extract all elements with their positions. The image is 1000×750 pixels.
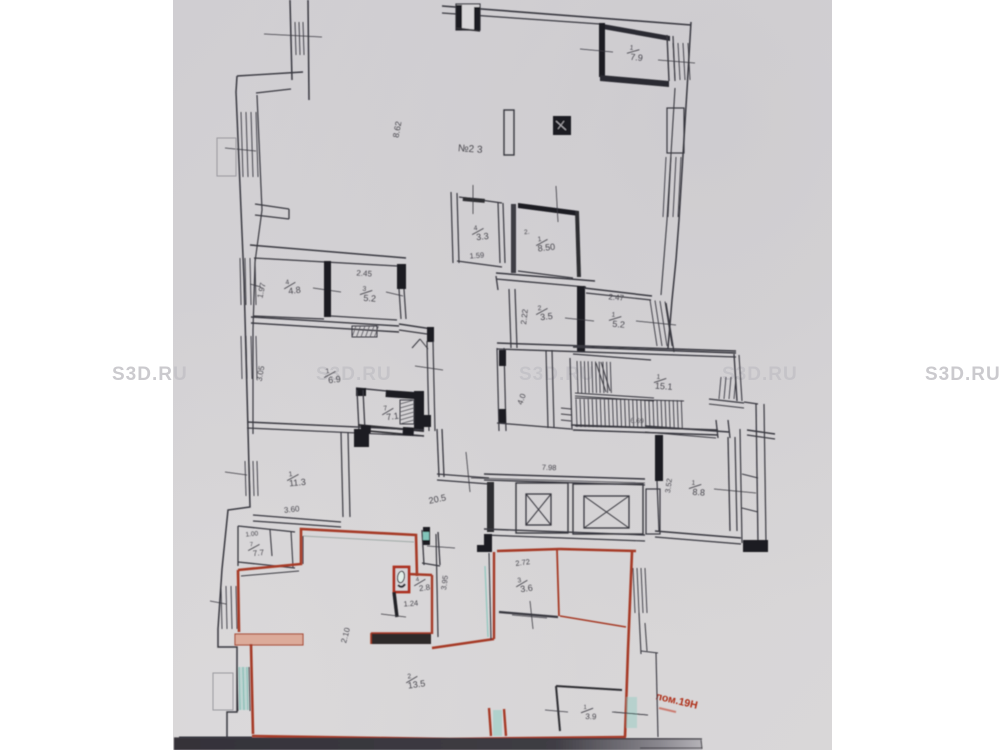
svg-text:3.3: 3.3 (476, 231, 489, 242)
svg-text:6.69: 6.69 (630, 418, 644, 425)
svg-text:15.1: 15.1 (655, 381, 673, 392)
svg-text:3.6: 3.6 (520, 583, 534, 595)
svg-text:S3D.RU: S3D.RU (112, 364, 188, 385)
svg-text:5.2: 5.2 (363, 293, 376, 304)
svg-text:7.9: 7.9 (630, 52, 643, 63)
svg-text:2.45: 2.45 (356, 268, 373, 278)
svg-text:3.5: 3.5 (540, 311, 553, 322)
svg-text:№2 3: №2 3 (458, 143, 484, 156)
svg-text:2.8: 2.8 (418, 583, 431, 594)
svg-text:7.1: 7.1 (386, 411, 400, 423)
svg-text:2.47: 2.47 (608, 292, 625, 302)
svg-text:S3D.RU: S3D.RU (519, 364, 595, 385)
svg-text:4.8: 4.8 (288, 285, 302, 297)
svg-text:S3D.RU: S3D.RU (925, 364, 1000, 385)
svg-text:7.7: 7.7 (252, 548, 265, 558)
svg-text:1.24: 1.24 (403, 599, 418, 609)
svg-text:7.98: 7.98 (542, 463, 557, 473)
svg-text:1.59: 1.59 (469, 251, 484, 261)
svg-text:2.22: 2.22 (519, 308, 530, 325)
svg-text:11.3: 11.3 (288, 477, 306, 489)
svg-text:6.9: 6.9 (328, 374, 341, 385)
svg-text:2.: 2. (524, 229, 530, 237)
svg-text:3.60: 3.60 (284, 504, 301, 515)
svg-text:S3D.RU: S3D.RU (722, 364, 798, 385)
svg-text:1.00: 1.00 (245, 530, 259, 538)
svg-text:8.8: 8.8 (692, 487, 705, 498)
svg-text:8.50: 8.50 (537, 242, 555, 254)
svg-text:5.2: 5.2 (612, 319, 625, 330)
svg-text:3.9: 3.9 (585, 712, 597, 721)
